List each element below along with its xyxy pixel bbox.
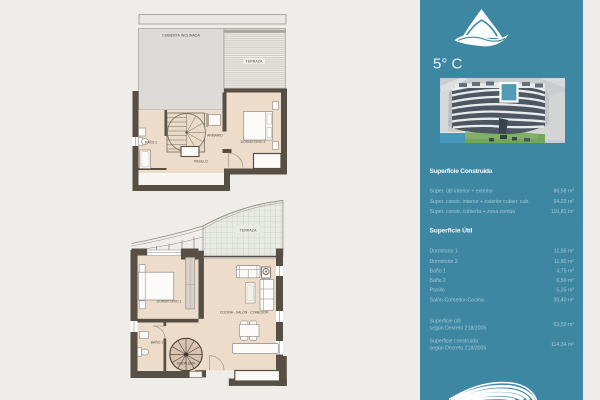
svg-text:Baño 2: Baño 2 [430,278,447,284]
svg-text:DORMITORIO 2: DORMITORIO 2 [241,140,266,144]
svg-text:Super. útil interior + exterio: Super. útil interior + exterior [430,189,494,195]
svg-text:según Decreto 218/2005: según Decreto 218/2005 [430,326,487,332]
svg-text:4,75 m²: 4,75 m² [556,269,574,275]
svg-text:PASILLO: PASILLO [194,160,208,164]
svg-text:ESCALERA: ESCALERA [177,361,196,365]
svg-text:Superficie útil: Superficie útil [430,319,461,325]
svg-text:63,53 m²: 63,53 m² [554,322,575,328]
svg-text:BAÑO 1: BAÑO 1 [151,340,164,345]
svg-text:94,23 m²: 94,23 m² [554,199,575,205]
svg-text:Salón-Comedor-Cocina: Salón-Comedor-Cocina [430,298,484,304]
svg-text:11,80 m²: 11,80 m² [554,259,574,265]
svg-text:Baño 1: Baño 1 [430,269,447,275]
svg-text:COCINA · SALÓN · COMEDOR: COCINA · SALÓN · COMEDOR [220,309,269,314]
svg-text:Super. constr. cubierta + zona: Super. constr. cubierta + zona común [430,209,516,215]
svg-text:ARMARIO: ARMARIO [207,134,223,138]
svg-text:6,50 m²: 6,50 m² [556,278,574,284]
svg-text:86,58 m²: 86,58 m² [554,189,575,195]
svg-text:Superficie construida: Superficie construida [430,339,479,345]
svg-text:según Decreto 218/2005: según Decreto 218/2005 [430,346,487,352]
svg-text:BAÑO 2: BAÑO 2 [145,140,158,145]
svg-text:Super. constr. interior + exte: Super. constr. interior + exterior cubie… [430,199,530,205]
svg-text:30,40 m²: 30,40 m² [554,298,575,304]
svg-text:5,35 m²: 5,35 m² [556,288,574,294]
svg-text:TERRAZA: TERRAZA [246,60,263,64]
svg-text:Superficie Útil: Superficie Útil [430,225,473,234]
svg-text:114,34 m²: 114,34 m² [551,342,574,348]
svg-text:Dormitorio 1: Dormitorio 1 [430,249,458,255]
svg-text:CUBIERTA INCLINADA: CUBIERTA INCLINADA [162,34,200,38]
svg-text:5° C: 5° C [433,56,463,73]
svg-text:Dormitorio 2: Dormitorio 2 [430,259,458,265]
svg-text:Superficie Construida: Superficie Construida [430,168,493,175]
svg-text:11,95 m²: 11,95 m² [554,249,574,255]
svg-text:Pasillo: Pasillo [430,288,445,294]
svg-text:DORMITORIO 1: DORMITORIO 1 [157,299,182,303]
svg-text:TERRAZA: TERRAZA [240,228,257,232]
svg-text:110,81 m²: 110,81 m² [551,209,574,215]
